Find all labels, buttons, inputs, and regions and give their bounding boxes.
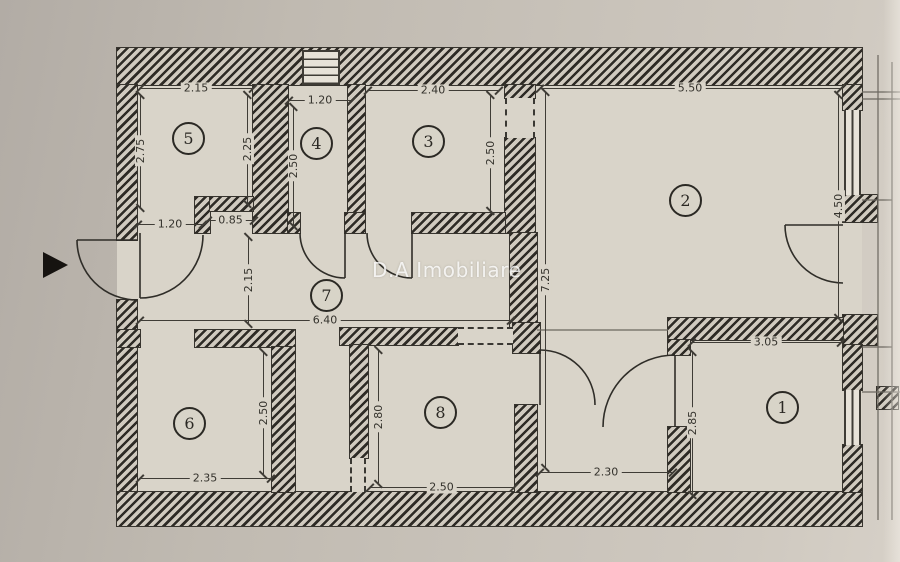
window-room2 <box>844 110 861 195</box>
wall-segment-left-lower <box>117 300 137 492</box>
dimension-room2-lower-width: 2.30 <box>540 472 672 473</box>
room-number-6: 6 <box>173 407 206 440</box>
wall-segment-right-c <box>843 445 862 492</box>
dimension-room3-width: 2.40 <box>368 90 498 91</box>
wall-segment-right-a <box>843 85 862 110</box>
dimension-room5-width: 2.15 <box>140 88 252 89</box>
dimension-room2-height: 4.50 <box>838 95 839 317</box>
wall-room1-left-a <box>668 340 690 355</box>
wall-room6-right <box>272 347 295 492</box>
dimension-room5-door-width: 1.20 <box>138 224 202 225</box>
dashed-opening-hall-corridor <box>458 327 513 345</box>
wall-segment-right-b <box>843 345 862 390</box>
dimension-hall-height: 2.15 <box>248 237 249 323</box>
window-room1 <box>844 390 861 445</box>
dimension-room2-width: 5.50 <box>540 88 840 89</box>
dashed-opening-room3-room2 <box>505 98 535 138</box>
wall-pillar-right-1 <box>843 195 877 222</box>
dimension-room8-height: 2.80 <box>378 350 379 483</box>
dimension-room6-height: 2.50 <box>263 352 264 474</box>
room-number-8: 8 <box>424 396 457 429</box>
wall-segment-bottom <box>117 492 862 526</box>
room-number-2: 2 <box>669 184 702 217</box>
dimension-room6-width: 2.35 <box>140 478 270 479</box>
dimension-room4-width: 1.20 <box>289 100 351 101</box>
dimension-room3-height: 2.50 <box>490 95 491 210</box>
dimension-room5-height-left: 2.75 <box>140 95 141 207</box>
dimension-nook-width: 0.85 <box>208 220 253 221</box>
wall-room3-room2-lower <box>505 138 535 233</box>
wall-room5-room4 <box>253 85 288 233</box>
room-number-4: 4 <box>300 127 333 160</box>
dimension-room5-height-right: 2.25 <box>247 95 248 203</box>
dashed-opening-room8 <box>350 458 366 492</box>
wall-room6-top-a <box>117 330 140 347</box>
wall-room4-room3 <box>348 85 365 233</box>
wall-room8-left <box>350 345 368 458</box>
floor-plan-photo: 2.15 1.20 2.40 5.50 0.85 1.20 6.40 2.35 … <box>0 0 900 562</box>
wall-room8-right <box>515 405 537 492</box>
wall-room3-room2-upper <box>505 85 535 98</box>
wall-pillar-mid <box>513 323 540 353</box>
dimension-room8-width: 2.50 <box>370 487 513 488</box>
ventilation-shaft <box>302 50 340 85</box>
room-number-3: 3 <box>412 125 445 158</box>
wall-pillar-right-2 <box>843 315 877 345</box>
room-number-5: 5 <box>172 122 205 155</box>
wall-hall-bottom <box>340 328 458 345</box>
paper-edge-highlight <box>883 0 900 562</box>
wall-segment-top <box>117 48 862 85</box>
wall-hall-top-c <box>412 213 505 233</box>
wall-hall-top-b <box>345 213 365 233</box>
dimension-room4-height: 2.50 <box>293 107 294 225</box>
dimension-hall-width: 6.40 <box>140 320 510 321</box>
wall-room6-top-b <box>195 330 295 347</box>
watermark: D.A Imobiliare <box>372 258 522 282</box>
room-number-1: 1 <box>766 391 799 424</box>
dimension-apartment-height: 7.25 <box>545 92 546 467</box>
room-number-7: 7 <box>310 279 343 312</box>
entrance-arrow-icon <box>43 252 68 278</box>
dimension-room1-width: 3.05 <box>692 342 840 343</box>
dimension-room1-height: 2.85 <box>692 352 693 494</box>
